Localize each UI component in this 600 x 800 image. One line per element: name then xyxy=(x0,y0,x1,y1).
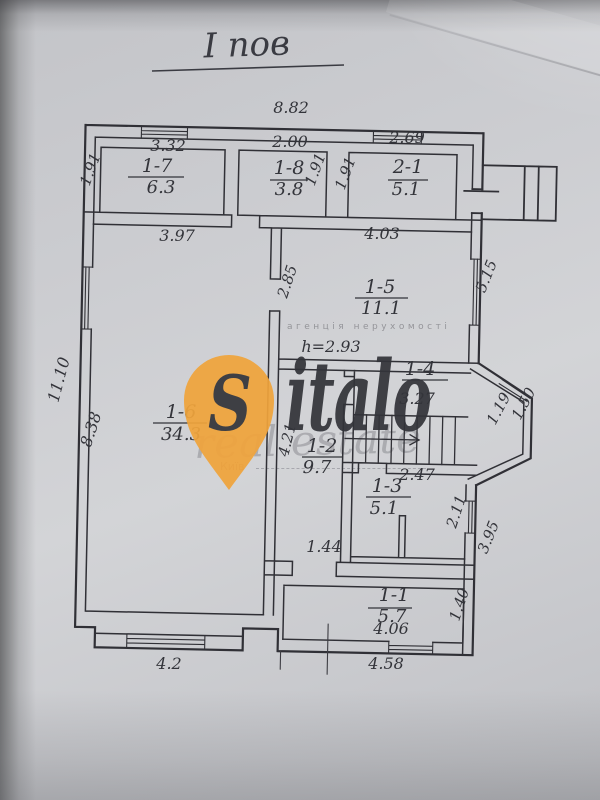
dim-h1-6: 8.38 xyxy=(76,409,105,449)
room-2-1-id: 2-1 xyxy=(392,156,424,178)
dim-top-total: 8.82 xyxy=(273,98,309,117)
stairs-direction-arrow xyxy=(345,433,419,445)
dim-w1-6-top: 3.97 xyxy=(159,226,195,245)
room-1-2-id: 1-2 xyxy=(307,435,338,457)
room-1-1-area: 5.7 xyxy=(378,606,407,627)
dim-w1-3: 2.47 xyxy=(398,465,435,484)
page-title: I пов xyxy=(202,24,291,67)
dim-h1-1: 1.40 xyxy=(446,585,474,623)
room-1-7-area: 6.3 xyxy=(147,177,176,198)
dim-h1-8: 1.91 xyxy=(301,151,329,189)
dim-right-side: 3.95 xyxy=(474,518,503,556)
dim-w2-1: 2.69 xyxy=(388,128,425,147)
windows xyxy=(75,125,536,656)
walls xyxy=(74,125,557,679)
dim-bottom-left: 4.2 xyxy=(155,654,181,673)
room-1-6-id: 1-6 xyxy=(166,401,197,423)
room-2-1-area: 5.1 xyxy=(392,179,421,200)
floor-plan-drawing: I пов 8.82 3.32 2.00 2.69 1.91 xyxy=(0,0,600,800)
dim-w1-4: 3.27 xyxy=(399,389,435,408)
room-1-2-area: 9.7 xyxy=(303,457,332,478)
dim-w1-8: 2.00 xyxy=(271,132,308,151)
paper-bottom-shadow xyxy=(0,690,600,800)
room-1-7-id: 1-7 xyxy=(142,155,174,177)
room-1-3-id: 1-3 xyxy=(372,475,403,497)
room-1-1-id: 1-1 xyxy=(379,584,410,606)
dim-w1-7: 3.32 xyxy=(150,136,186,155)
dim-ceiling-height: h=2.93 xyxy=(301,337,360,356)
dim-h1-3: 2.11 xyxy=(442,493,470,531)
room-1-8-area: 3.8 xyxy=(275,179,304,200)
room-1-8-id: 1-8 xyxy=(274,157,305,179)
dim-h1-5-left: 2.85 xyxy=(273,263,301,301)
dim-w1-5: 4.03 xyxy=(363,224,400,243)
dim-door-width: 1.44 xyxy=(306,537,342,556)
title-underline xyxy=(152,65,344,71)
dim-h1-5-right: 5.15 xyxy=(472,257,501,295)
dim-bay-outer: 1.50 xyxy=(508,384,540,422)
porch-steps xyxy=(464,165,557,221)
room-1-4-id: 1-4 xyxy=(405,358,436,380)
dimension-ticks xyxy=(280,623,328,674)
room-1-5-id: 1-5 xyxy=(365,276,396,298)
dim-left-total: 11.10 xyxy=(44,355,74,404)
outer-walls xyxy=(75,125,538,656)
scanned-floor-plan-photo: агенція нерухомості real estate Київ I п… xyxy=(0,0,600,800)
dim-bottom-right: 4.58 xyxy=(367,654,404,673)
room-1-3-area: 5.1 xyxy=(370,498,399,519)
room-1-5-area: 11.1 xyxy=(361,298,401,319)
dim-h2-1: 1.91 xyxy=(331,155,359,193)
room-1-6-area: 34.3 xyxy=(161,424,201,445)
